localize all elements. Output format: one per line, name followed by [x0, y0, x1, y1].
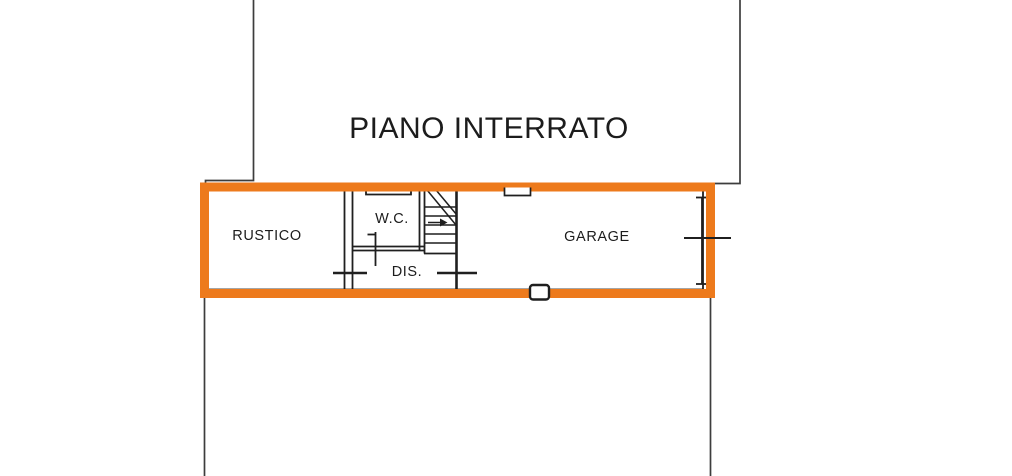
floor-plan-drawing: PIANO INTERRATO RUSTICO W.C. DIS. GARAGE [0, 0, 1012, 476]
room-label-rustico: RUSTICO [232, 228, 301, 244]
building-outline-lower [205, 295, 711, 476]
garage-bottom-window-symbol [530, 285, 549, 300]
room-label-dis: DIS. [392, 264, 423, 280]
building-outline-upper [206, 0, 741, 186]
outline-left-wall [206, 0, 254, 186]
room-label-garage: GARAGE [564, 229, 630, 245]
garage-top-window-symbol [505, 188, 531, 196]
page-title: PIANO INTERRATO [349, 112, 629, 145]
room-label-wc: W.C. [375, 211, 409, 227]
stairs [425, 190, 457, 243]
stair-break-line-2 [436, 190, 457, 215]
outline-right-wall [712, 0, 740, 184]
floorplan-page: PIANO INTERRATO RUSTICO W.C. DIS. GARAGE [0, 0, 1012, 476]
